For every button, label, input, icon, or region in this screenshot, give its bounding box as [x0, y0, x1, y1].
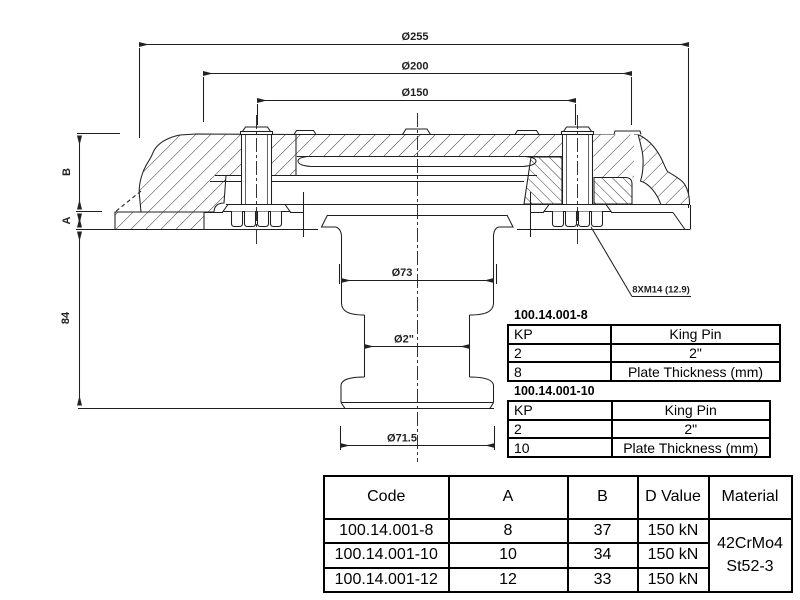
svg-text:Ø2": Ø2"	[394, 334, 414, 346]
svg-text:Ø200: Ø200	[402, 61, 429, 73]
svg-text:8XM14 (12.9): 8XM14 (12.9)	[632, 285, 690, 296]
svg-text:A: A	[61, 216, 73, 224]
svg-text:Ø255: Ø255	[402, 31, 429, 43]
svg-text:Ø150: Ø150	[402, 87, 429, 99]
svg-text:Ø71.5: Ø71.5	[387, 433, 417, 445]
svg-text:B: B	[61, 168, 73, 176]
svg-text:84: 84	[60, 311, 72, 324]
svg-text:Ø73: Ø73	[392, 267, 413, 279]
